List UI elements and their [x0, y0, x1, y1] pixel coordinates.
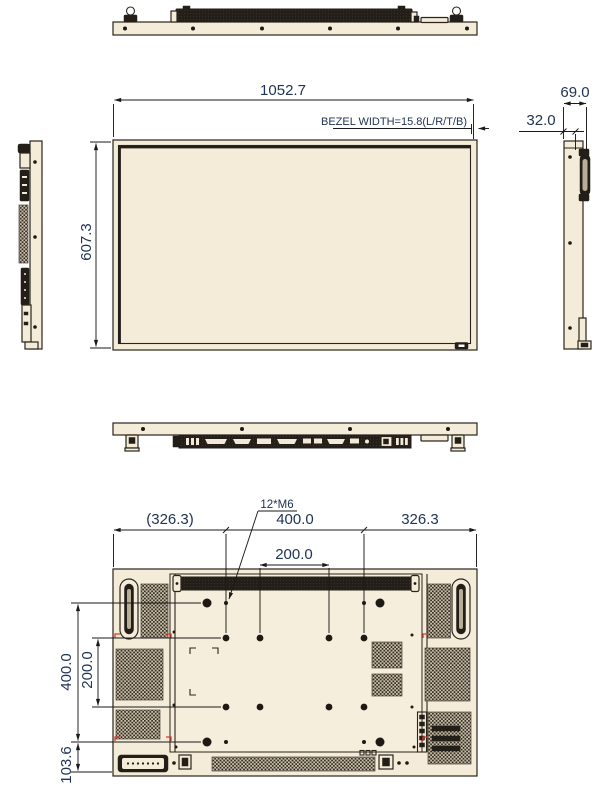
dim-front-height: 607.3	[78, 142, 111, 348]
ac-inlet	[118, 755, 168, 772]
screw	[33, 325, 37, 329]
pin	[24, 273, 26, 275]
bottom-foot-right	[451, 435, 465, 451]
dim-rear-bottom-offset: 103.6	[58, 744, 112, 784]
vesa-hole	[361, 635, 368, 642]
screw	[191, 27, 195, 31]
eyebolt-ring	[127, 7, 135, 15]
eyebolt-left	[124, 7, 137, 22]
terminal-pin	[420, 743, 425, 747]
screw	[414, 582, 417, 585]
dsub-port	[205, 439, 227, 444]
bottom-chassis	[113, 423, 477, 435]
vesa-hole	[257, 704, 264, 711]
terminal-pin	[420, 729, 425, 733]
right-side-view	[564, 141, 591, 349]
technical-drawing: 1052.7 BEZEL WIDTH=15.8(L/R/T/B) 607.3 6…	[0, 0, 610, 795]
ir-sensor	[455, 343, 468, 350]
vent-patch	[428, 584, 451, 638]
vesa-hole	[223, 635, 230, 642]
screw	[172, 761, 176, 765]
front-view	[113, 140, 477, 350]
vesa-hole	[326, 635, 333, 642]
bottom-vent-strip	[212, 757, 375, 771]
screw	[141, 427, 145, 431]
side-foot	[25, 342, 38, 349]
foot-pad	[455, 438, 461, 444]
side-vent	[19, 205, 28, 263]
screw	[328, 27, 332, 31]
vesa-hole	[362, 740, 366, 744]
screw	[173, 631, 176, 634]
front-bezel	[113, 140, 477, 350]
handle-slot	[459, 589, 463, 629]
terminal-bar	[432, 746, 460, 751]
vesa-hole	[223, 704, 230, 711]
front-height-label: 607.3	[78, 223, 95, 261]
connector-slot	[22, 192, 27, 194]
handle-slot	[127, 589, 131, 629]
bezel-note-label: BEZEL WIDTH=15.8(L/R/T/B)	[321, 116, 467, 128]
terminal-bar	[432, 736, 460, 741]
pin	[132, 762, 134, 764]
bracket-pad	[383, 758, 390, 766]
vent-patch	[372, 674, 402, 696]
rear-step	[20, 153, 30, 168]
mounting-hole-large	[376, 738, 385, 747]
screw	[405, 761, 409, 765]
dsub-port	[233, 439, 251, 444]
port-cutout	[191, 438, 194, 445]
rear-vesa-width-label: 400.0	[276, 511, 314, 528]
dsub-port	[327, 439, 345, 444]
vent-patch	[372, 642, 402, 668]
terminal-pin	[420, 722, 425, 726]
vent-patch	[425, 648, 470, 701]
pin	[24, 297, 26, 299]
pin	[127, 762, 129, 764]
port-cutout	[396, 438, 399, 445]
eyebolt-right	[450, 7, 463, 22]
bottom-block	[421, 435, 448, 441]
port-cutout	[405, 438, 408, 445]
io-panel-cap	[173, 436, 179, 447]
screw	[413, 746, 416, 749]
vent-patch	[141, 584, 168, 638]
pin	[157, 762, 159, 764]
top-view	[113, 6, 477, 35]
screw	[260, 27, 264, 31]
mounting-hole-large	[376, 599, 385, 608]
rear-vesa-width-inner-label: 200.0	[275, 546, 313, 563]
rear-offset-left-label: (326.3)	[146, 511, 194, 528]
pin	[24, 289, 26, 291]
strip-end-cap	[171, 11, 177, 22]
mounting-hole-large	[203, 738, 212, 747]
dim-bezel-width: BEZEL WIDTH=15.8(L/R/T/B)	[321, 116, 489, 134]
vent-patch	[116, 710, 160, 739]
screw	[348, 427, 352, 431]
rear-top-vent	[180, 577, 412, 590]
rear-handle-left	[120, 579, 138, 639]
screw	[568, 241, 572, 245]
dsub-port	[277, 439, 297, 444]
rear-view	[113, 569, 477, 776]
port-cutout	[257, 439, 271, 445]
handle-slot	[583, 159, 588, 191]
left-side-view	[18, 141, 42, 349]
port-cutout	[303, 439, 311, 444]
foot-pad	[129, 438, 135, 444]
screw	[396, 27, 400, 31]
rear-handle-right	[452, 579, 470, 639]
eyebolt-base	[124, 15, 137, 22]
port-cutout	[186, 438, 189, 445]
terminal-bar	[432, 726, 460, 731]
panel-mark	[24, 322, 28, 325]
strip-tab	[398, 6, 405, 10]
io-insert-port	[384, 439, 389, 444]
rear-bottom-offset-label: 103.6	[58, 746, 75, 784]
pin	[142, 762, 144, 764]
bottom-foot-left	[125, 435, 139, 451]
strip-tab	[183, 6, 190, 10]
screw	[33, 160, 37, 164]
screw	[446, 427, 450, 431]
foot-lip	[125, 448, 139, 451]
screw	[123, 27, 127, 31]
rear-offset-right-label: 326.3	[401, 511, 439, 528]
dim-depth-total: 69.0	[560, 84, 589, 150]
screw	[568, 155, 572, 159]
rear-vesa-height-label: 400.0	[58, 653, 75, 691]
screw	[176, 582, 179, 585]
screw-spec-label: 12*M6	[260, 499, 293, 511]
bottom-view	[113, 423, 477, 451]
screw	[240, 427, 244, 431]
foot-lip	[451, 448, 465, 451]
top-vent-strip	[176, 9, 412, 22]
bracket-pad	[182, 758, 188, 766]
depth-body-label: 32.0	[526, 112, 555, 129]
vent-patch	[116, 649, 163, 700]
terminal-pin	[420, 715, 425, 719]
top-chassis	[113, 22, 477, 35]
pin	[24, 281, 26, 283]
pin	[137, 762, 139, 764]
pin	[147, 762, 149, 764]
port-cutout	[350, 439, 359, 444]
eyebolt-base	[450, 15, 463, 22]
terminal-area	[428, 712, 471, 764]
screw	[175, 746, 178, 749]
panel-mark	[24, 312, 28, 315]
side-body	[30, 141, 42, 349]
connector-slot	[22, 176, 27, 178]
vesa-hole	[326, 704, 333, 711]
handle-bracket	[18, 144, 30, 153]
rear-foot-riser	[579, 318, 586, 344]
pin	[152, 762, 154, 764]
port-cutout	[401, 438, 404, 445]
vesa-hole	[257, 635, 264, 642]
screw	[568, 326, 572, 330]
port-cutout	[314, 439, 322, 444]
port-cutout	[365, 440, 369, 444]
rear-vesa-height-inner-label: 200.0	[79, 651, 96, 689]
drawing-svg: 1052.7 BEZEL WIDTH=15.8(L/R/T/B) 607.3 6…	[0, 0, 610, 795]
port-cutout	[196, 438, 199, 445]
screw	[465, 27, 469, 31]
screw	[411, 634, 414, 637]
small-connector	[414, 16, 419, 22]
ir-sensor-window	[459, 345, 465, 348]
screw	[173, 704, 176, 707]
depth-total-label: 69.0	[560, 84, 589, 101]
screw	[33, 235, 37, 239]
front-width-label: 1052.7	[260, 82, 306, 99]
top-block	[421, 18, 448, 23]
dim-front-width: 1052.7	[114, 82, 474, 139]
vesa-hole	[361, 704, 368, 711]
screw	[397, 761, 401, 765]
eyebolt-ring	[453, 7, 461, 15]
mounting-hole-large	[203, 599, 212, 608]
foot-pad	[581, 343, 588, 347]
screw	[411, 706, 414, 709]
connector-slot	[22, 184, 27, 186]
vesa-hole	[224, 740, 228, 744]
